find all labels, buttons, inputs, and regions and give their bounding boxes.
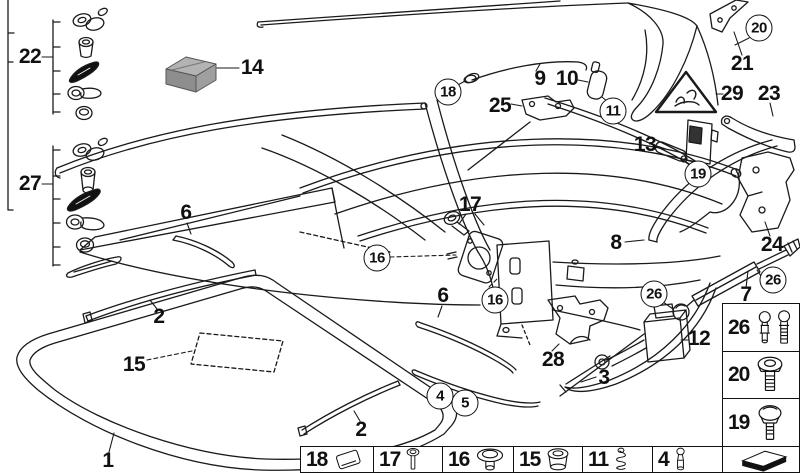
part-label-28[interactable]: 28 [542,348,564,372]
part-label-3[interactable]: 3 [598,366,609,390]
part-label-15[interactable]: 15 [123,353,145,377]
callout-labels-layer: 2227149101825111329232120192481716166622… [0,0,800,473]
part-label-6[interactable]: 6 [180,201,191,225]
part-label-29[interactable]: 29 [721,82,743,106]
part-callout-26[interactable]: 26 [641,281,668,308]
part-label-13[interactable]: 13 [634,133,656,157]
part-label-22[interactable]: 22 [19,45,41,69]
part-label-12[interactable]: 12 [688,327,710,351]
part-label-21[interactable]: 21 [731,52,753,76]
part-label-23[interactable]: 23 [758,82,780,106]
part-label-2[interactable]: 2 [153,305,164,329]
part-callout-11[interactable]: 11 [600,98,627,125]
part-label-7[interactable]: 7 [740,283,751,307]
part-label-10[interactable]: 10 [556,67,578,91]
part-callout-26[interactable]: 26 [760,267,787,294]
part-callout-19[interactable]: 19 [685,161,712,188]
part-label-17[interactable]: 17 [459,193,481,217]
part-callout-4[interactable]: 4 [427,383,454,410]
part-callout-16[interactable]: 16 [482,287,509,314]
part-label-2[interactable]: 2 [355,418,366,442]
part-label-24[interactable]: 24 [761,233,783,257]
part-label-9[interactable]: 9 [534,67,545,91]
part-callout-20[interactable]: 20 [746,15,773,42]
part-callout-18[interactable]: 18 [435,79,462,106]
part-label-25[interactable]: 25 [489,94,511,118]
part-label-8[interactable]: 8 [610,231,621,255]
part-label-14[interactable]: 14 [241,56,263,80]
part-label-6[interactable]: 6 [437,284,448,308]
part-callout-16[interactable]: 16 [364,245,391,272]
part-callout-5[interactable]: 5 [452,390,479,417]
part-label-1[interactable]: 1 [102,449,113,473]
part-label-27[interactable]: 27 [19,172,41,196]
parts-diagram-stage: 2227149101825111329232120192481716166622… [0,0,800,473]
